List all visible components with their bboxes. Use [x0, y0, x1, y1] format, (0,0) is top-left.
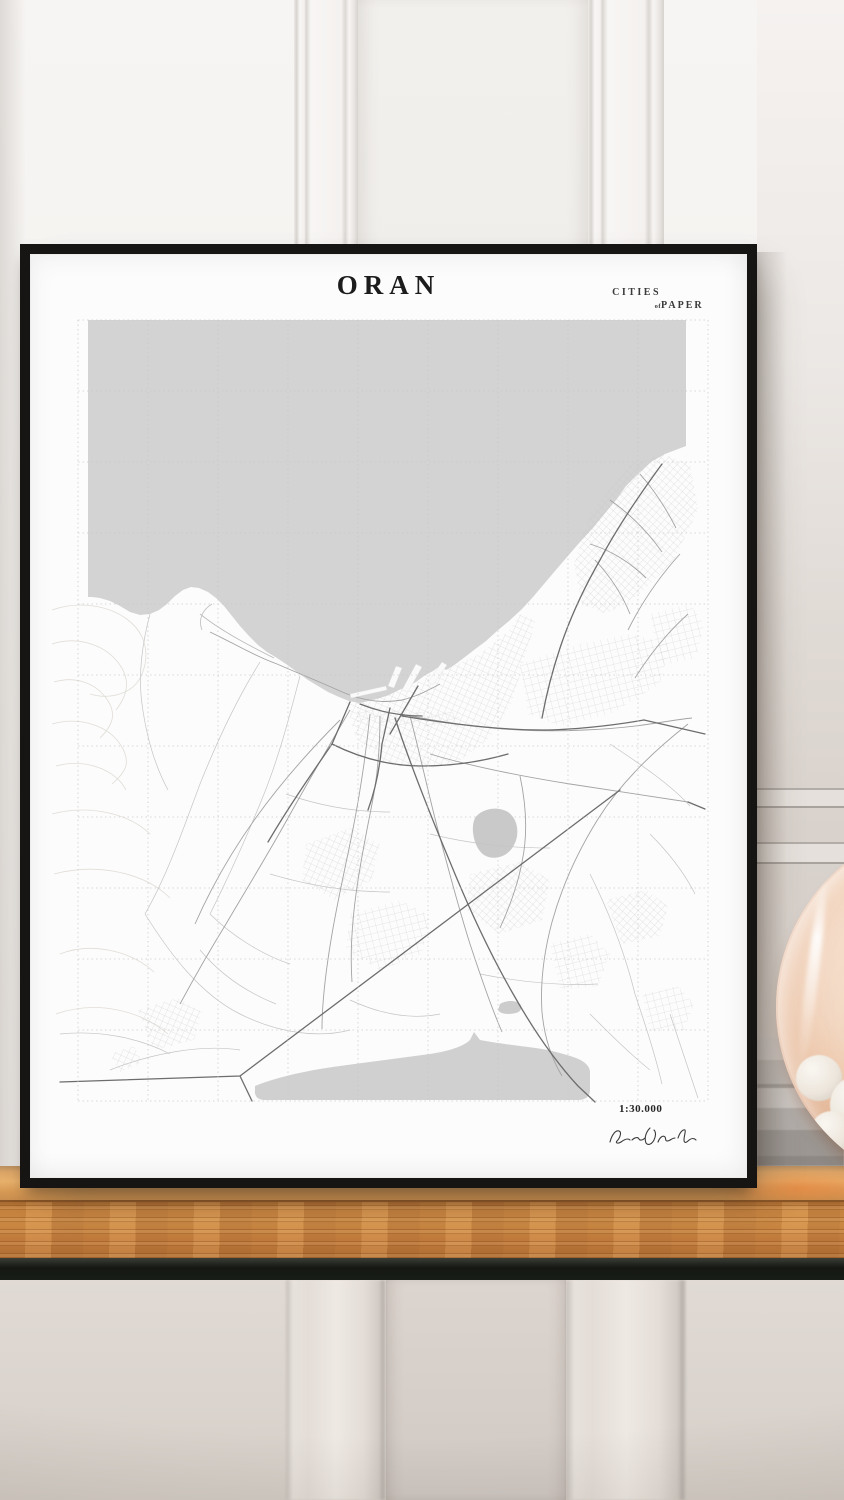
shelf-underside-shadow [0, 1258, 844, 1280]
salt-lake [255, 1032, 590, 1100]
poster-frame: ORAN CITIES ofPAPER [20, 244, 757, 1188]
map-poster: ORAN CITIES ofPAPER [30, 254, 747, 1178]
shelf-front-edge [0, 1200, 844, 1258]
lower-wall-vignette [0, 1280, 844, 1500]
hill-contours [52, 605, 170, 1034]
lake-dhaya-morsli [473, 809, 518, 858]
brand-line1: CITIES [612, 287, 661, 300]
lower-wall-paneling [0, 1280, 844, 1500]
map-scale-label: 1:30.000 [619, 1103, 662, 1115]
room-scene: ORAN CITIES ofPAPER [0, 0, 844, 1500]
brand-line2: ofPAPER [612, 300, 661, 313]
brand-paper: PAPER [661, 300, 704, 313]
oran-street-map [50, 314, 712, 1103]
brand-logo: CITIES ofPAPER [612, 287, 661, 312]
artist-signature [606, 1120, 698, 1154]
